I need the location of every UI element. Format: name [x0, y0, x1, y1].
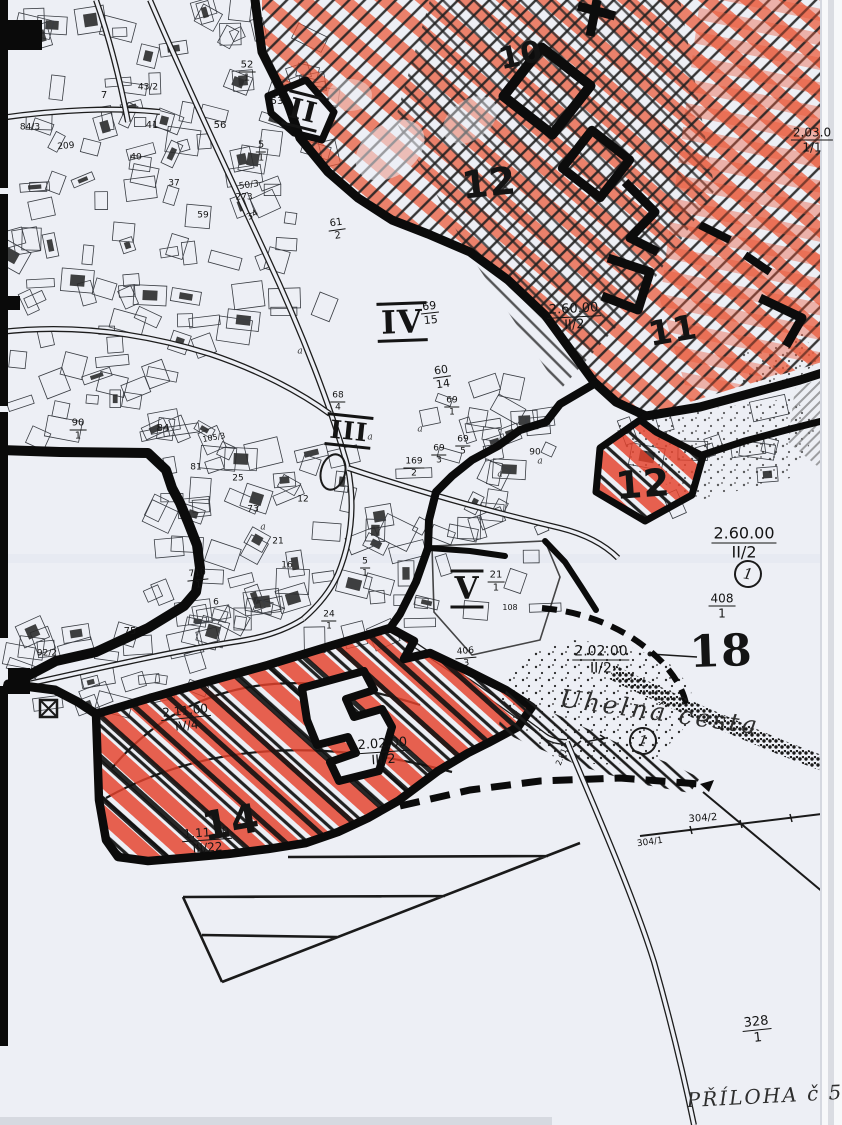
map-canvas — [0, 0, 842, 1125]
scanned-zoning-map: Uhelná cesta PŘÍLOHA č 5 IIIVIIIV1012111… — [0, 0, 842, 1125]
scan-crease — [0, 554, 822, 563]
